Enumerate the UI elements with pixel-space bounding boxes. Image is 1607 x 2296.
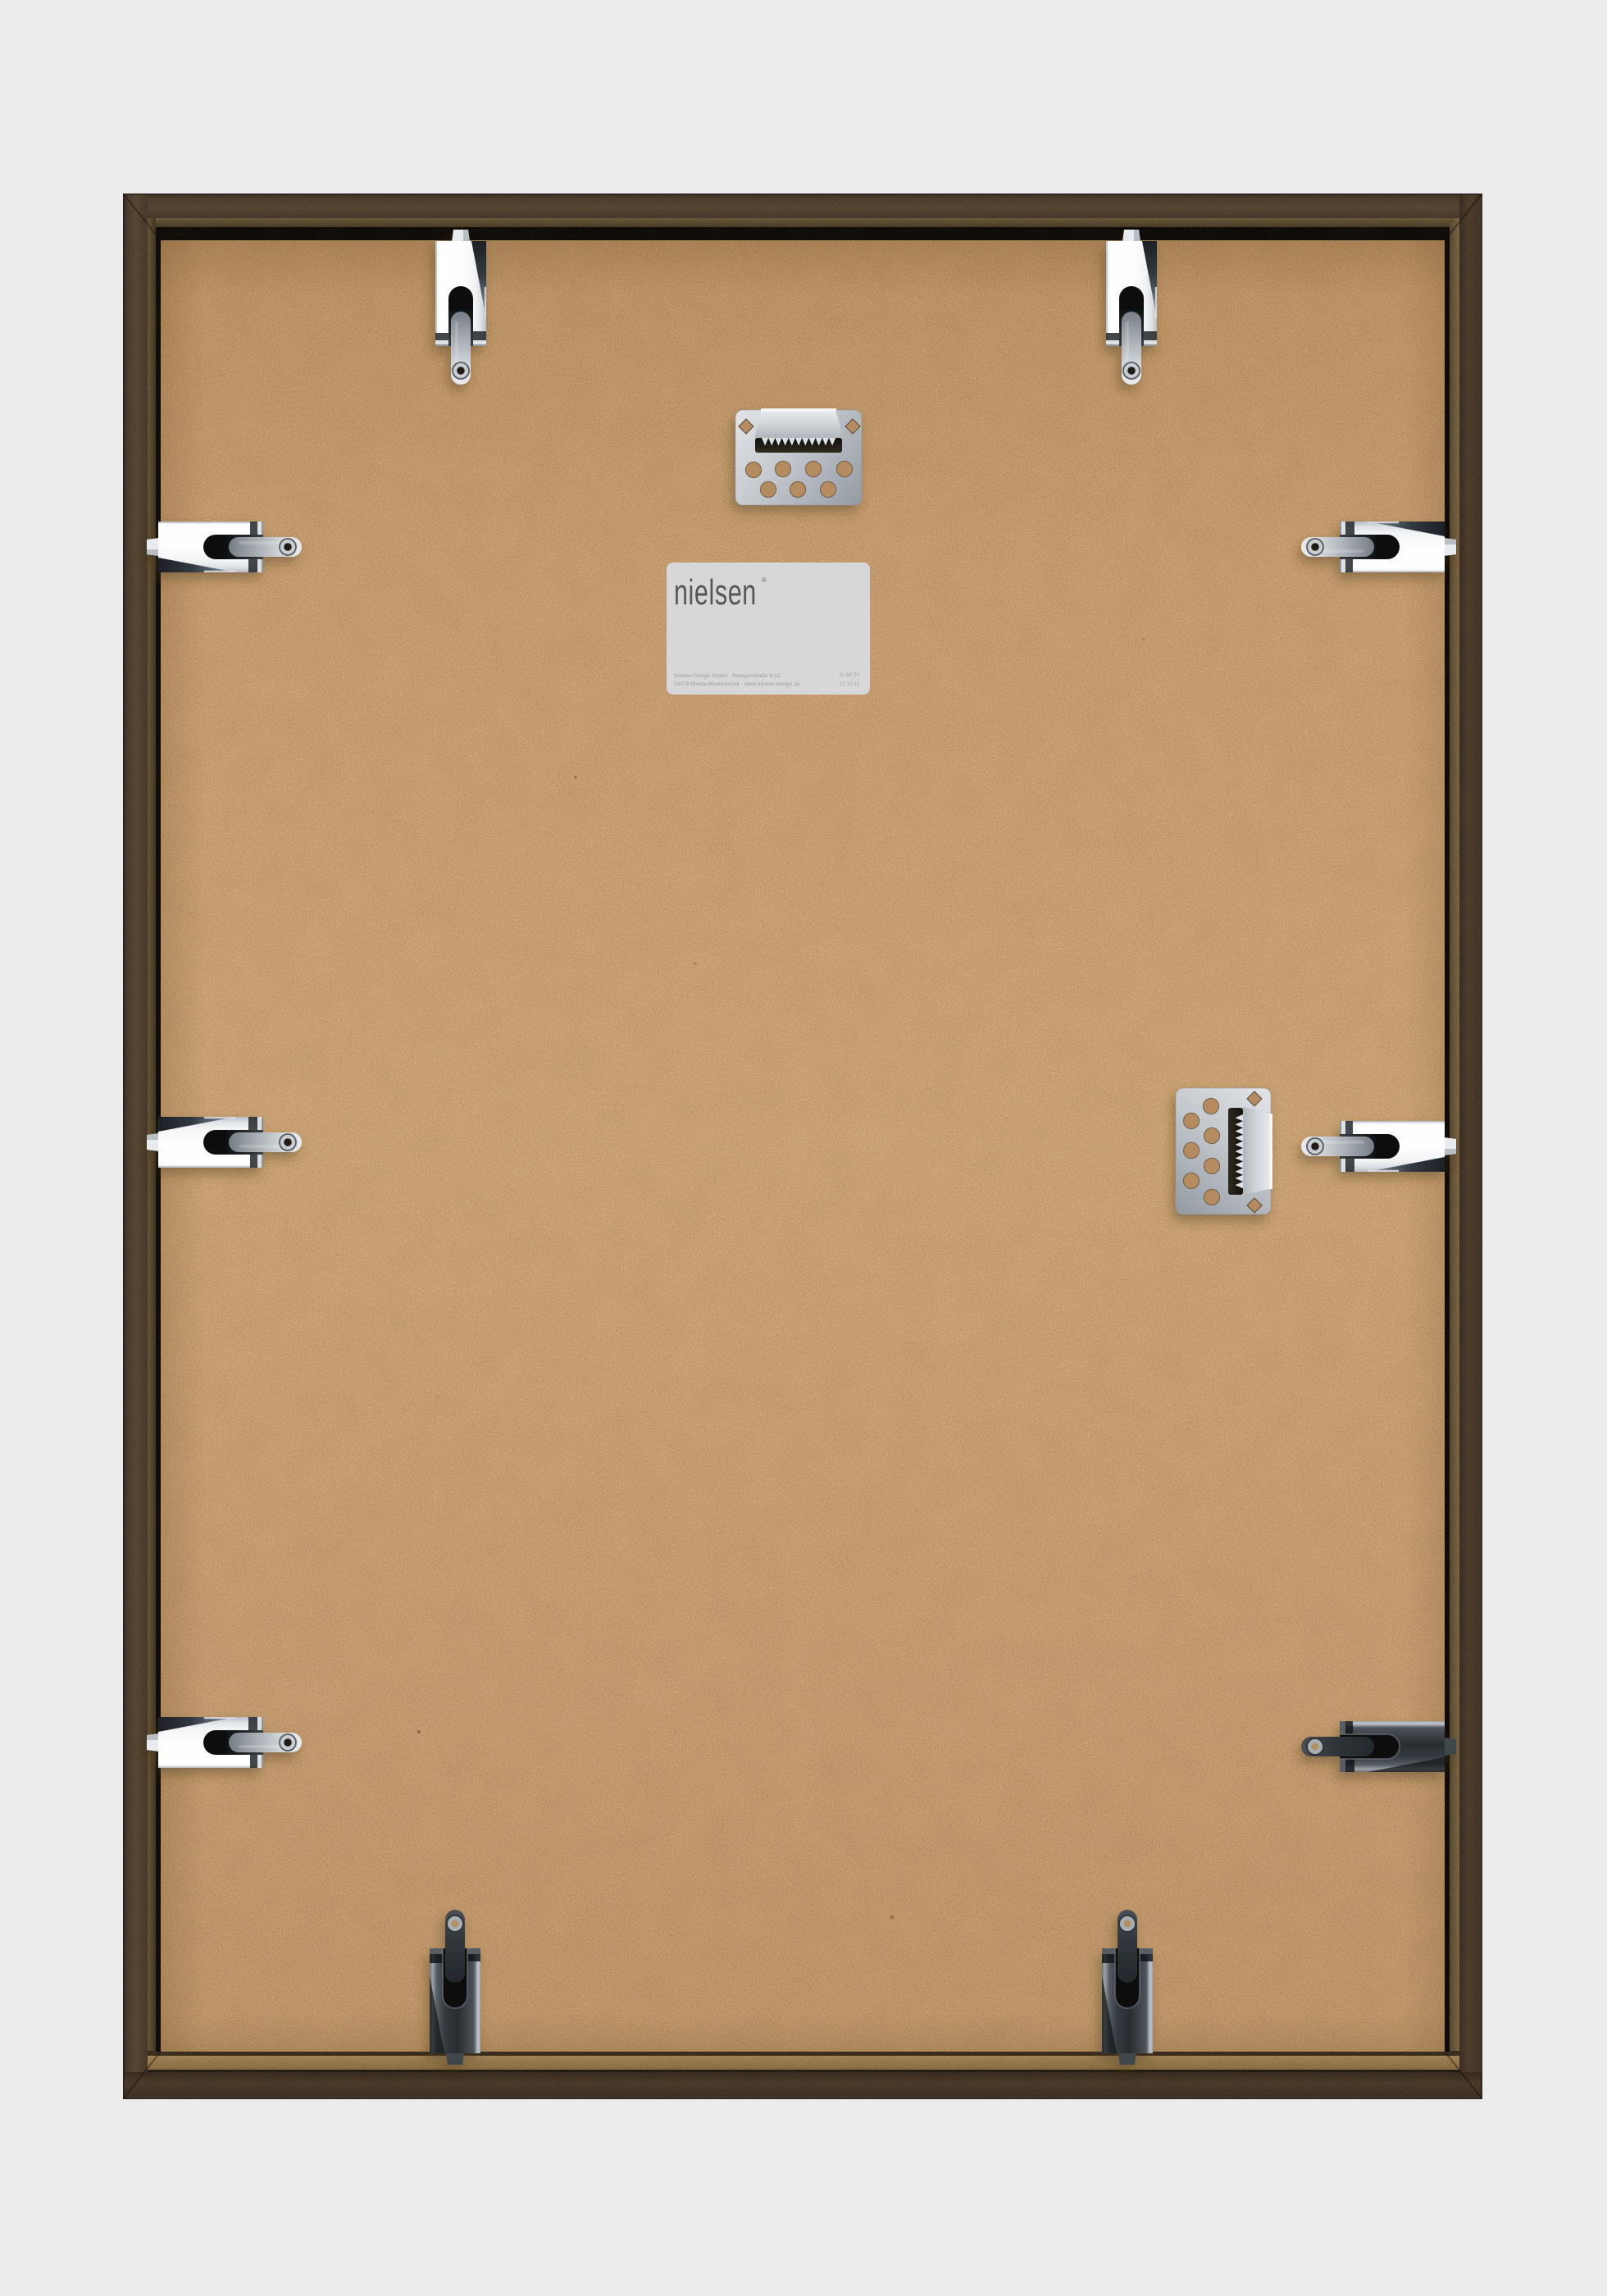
svg-text:nielsen: nielsen [674,572,757,613]
svg-text:Nielsen Design GmbH · Röntgens: Nielsen Design GmbH · Röntgenstraße 8-12 [674,673,781,679]
svg-text:®: ® [762,576,767,584]
svg-text:33378 Rheda-Wiedenbrück · www.: 33378 Rheda-Wiedenbrück · www.nielsen-de… [674,681,800,687]
svg-text:11 56 20: 11 56 20 [840,672,860,678]
svg-text:21 10 11: 21 10 11 [840,681,860,687]
